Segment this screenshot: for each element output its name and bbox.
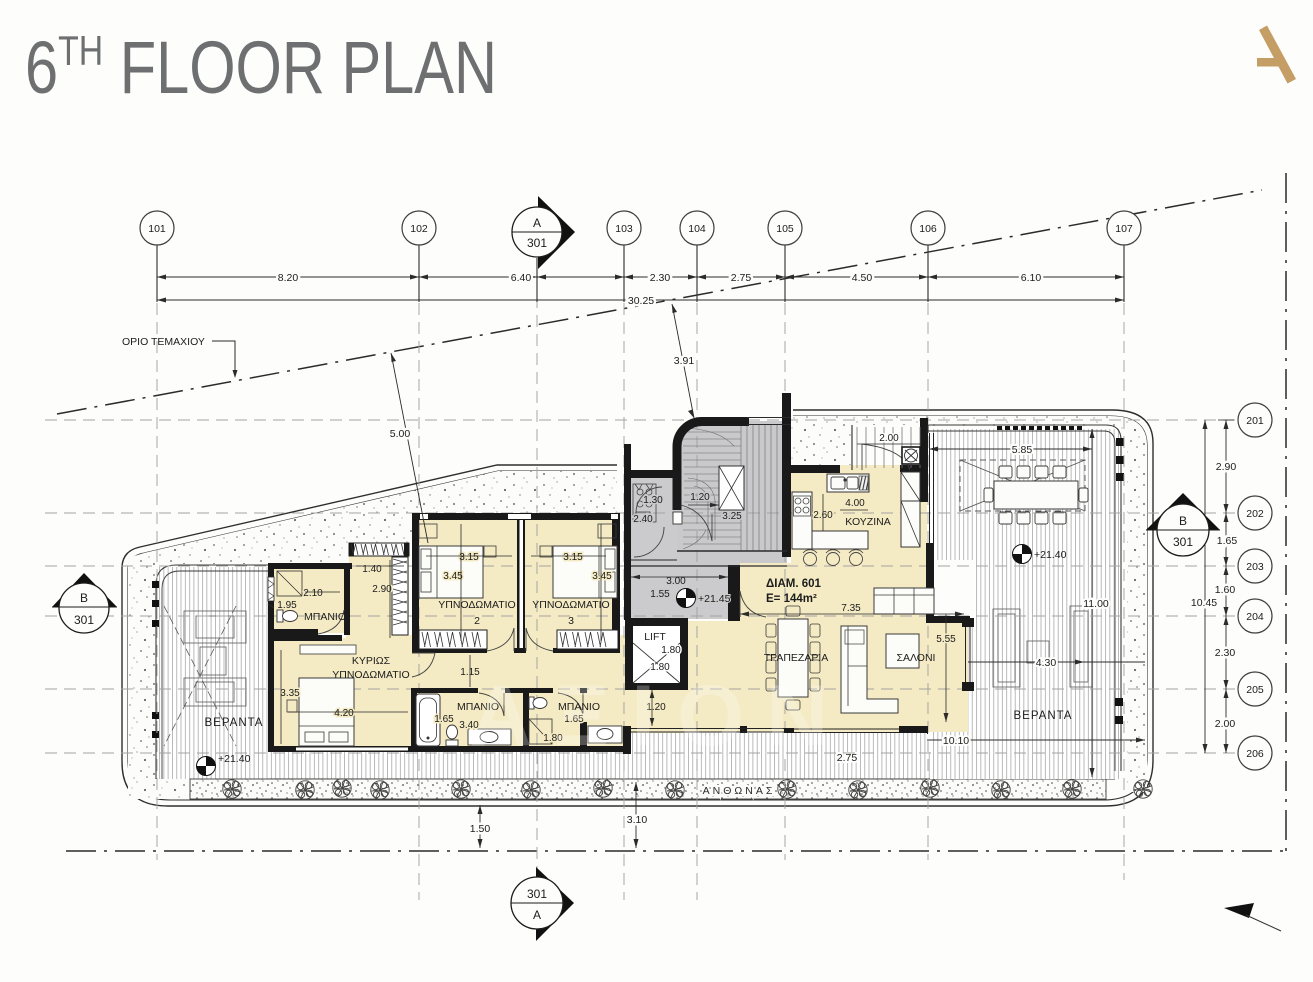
svg-text:1.65: 1.65 bbox=[1217, 535, 1238, 547]
svg-text:1.65: 1.65 bbox=[434, 714, 454, 725]
svg-text:ΚΟΥΖΙΝΑ: ΚΟΥΖΙΝΑ bbox=[845, 516, 890, 528]
svg-text:ΒΕΡΑΝΤΑ: ΒΕΡΑΝΤΑ bbox=[205, 717, 264, 729]
svg-text:10.45: 10.45 bbox=[1191, 597, 1217, 609]
svg-text:ΟΡΙΟ ΤΕΜΑΧΙΟΥ: ΟΡΙΟ ΤΕΜΑΧΙΟΥ bbox=[122, 336, 205, 348]
svg-text:105: 105 bbox=[776, 223, 794, 235]
svg-text:A: A bbox=[533, 908, 541, 922]
svg-text:5.00: 5.00 bbox=[390, 428, 411, 440]
svg-text:106: 106 bbox=[919, 223, 937, 235]
svg-text:2.40: 2.40 bbox=[633, 514, 653, 525]
svg-text:3.15: 3.15 bbox=[563, 552, 583, 563]
svg-text:3.10: 3.10 bbox=[627, 814, 648, 826]
svg-text:3.45: 3.45 bbox=[443, 571, 463, 582]
svg-text:1.95: 1.95 bbox=[277, 600, 297, 611]
svg-text:2.90: 2.90 bbox=[372, 584, 392, 595]
svg-text:ΔΙΑΜ. 601: ΔΙΑΜ. 601 bbox=[766, 578, 822, 590]
svg-text:101: 101 bbox=[148, 223, 166, 235]
svg-text:ΤΡΑΠΕΖΑΡΙΑ: ΤΡΑΠΕΖΑΡΙΑ bbox=[764, 652, 829, 664]
svg-text:ΥΠΝΟΔΩΜΑΤΙΟ: ΥΠΝΟΔΩΜΑΤΙΟ bbox=[438, 599, 515, 611]
svg-text:301: 301 bbox=[1173, 535, 1193, 549]
svg-text:3: 3 bbox=[568, 615, 574, 627]
svg-text:1.50: 1.50 bbox=[470, 823, 491, 835]
svg-text:3.15: 3.15 bbox=[459, 552, 479, 563]
svg-text:10.10: 10.10 bbox=[943, 735, 969, 747]
svg-text:1.60: 1.60 bbox=[1215, 584, 1236, 596]
svg-text:A: A bbox=[533, 216, 541, 230]
svg-text:+21.45: +21.45 bbox=[698, 593, 731, 605]
svg-text:1.80: 1.80 bbox=[661, 645, 681, 656]
svg-text:6.10: 6.10 bbox=[1021, 272, 1042, 284]
svg-text:1.55: 1.55 bbox=[650, 589, 670, 600]
svg-text:3.35: 3.35 bbox=[280, 688, 300, 699]
svg-text:301: 301 bbox=[74, 613, 94, 627]
svg-text:2.00: 2.00 bbox=[1215, 718, 1236, 730]
svg-text:ΑΞΙΟΝ: ΑΞΙΟΝ bbox=[470, 668, 850, 764]
svg-text:2: 2 bbox=[474, 615, 480, 627]
svg-text:103: 103 bbox=[615, 223, 633, 235]
svg-text:203: 203 bbox=[1246, 561, 1264, 573]
svg-text:1.30: 1.30 bbox=[643, 495, 663, 506]
svg-text:5.55: 5.55 bbox=[936, 634, 956, 645]
svg-text:7.35: 7.35 bbox=[841, 603, 861, 614]
svg-text:3.45: 3.45 bbox=[592, 571, 612, 582]
svg-text:4.30: 4.30 bbox=[1036, 657, 1057, 669]
svg-text:5.85: 5.85 bbox=[1012, 444, 1033, 456]
svg-text:ΚΥΡΙΩΣ: ΚΥΡΙΩΣ bbox=[352, 655, 391, 667]
svg-text:2.90: 2.90 bbox=[1216, 461, 1237, 473]
svg-text:2.30: 2.30 bbox=[650, 272, 671, 284]
svg-text:202: 202 bbox=[1246, 508, 1264, 520]
svg-text:3.25: 3.25 bbox=[722, 511, 742, 522]
svg-text:204: 204 bbox=[1246, 611, 1264, 623]
svg-text:+21.40: +21.40 bbox=[1034, 549, 1067, 561]
svg-text:ΜΠΑΝΙΟ: ΜΠΑΝΙΟ bbox=[304, 611, 346, 623]
svg-text:206: 206 bbox=[1246, 748, 1264, 760]
svg-text:2.30: 2.30 bbox=[1215, 647, 1236, 659]
svg-text:B: B bbox=[1179, 514, 1187, 528]
svg-text:301: 301 bbox=[527, 236, 547, 250]
svg-text:205: 205 bbox=[1246, 684, 1264, 696]
svg-text:2.75: 2.75 bbox=[731, 272, 752, 284]
svg-text:3.00: 3.00 bbox=[666, 576, 686, 587]
svg-text:301: 301 bbox=[527, 887, 547, 901]
svg-text:104: 104 bbox=[688, 223, 706, 235]
svg-text:ΥΠΝΟΔΩΜΑΤΙΟ: ΥΠΝΟΔΩΜΑΤΙΟ bbox=[532, 599, 609, 611]
svg-text:4.50: 4.50 bbox=[852, 272, 873, 284]
svg-text:11.00: 11.00 bbox=[1083, 598, 1109, 610]
svg-text:+21.40: +21.40 bbox=[218, 753, 251, 765]
svg-text:1.20: 1.20 bbox=[690, 492, 710, 503]
svg-text:ΥΠΝΟΔΩΜΑΤΙΟ: ΥΠΝΟΔΩΜΑΤΙΟ bbox=[332, 669, 409, 681]
svg-text:E= 144m²: E= 144m² bbox=[766, 593, 817, 605]
svg-text:107: 107 bbox=[1115, 223, 1133, 235]
svg-text:102: 102 bbox=[410, 223, 428, 235]
svg-text:30.25: 30.25 bbox=[628, 295, 654, 307]
svg-text:2.10: 2.10 bbox=[303, 588, 323, 599]
svg-text:ΑΝΘΩΝΑΣ: ΑΝΘΩΝΑΣ bbox=[703, 785, 776, 797]
svg-text:3.91: 3.91 bbox=[674, 355, 695, 367]
svg-text:4.00: 4.00 bbox=[845, 498, 865, 509]
svg-text:LIFT: LIFT bbox=[644, 631, 666, 643]
svg-text:8.20: 8.20 bbox=[278, 272, 299, 284]
svg-text:2.00: 2.00 bbox=[879, 433, 899, 444]
svg-text:4.20: 4.20 bbox=[334, 708, 354, 719]
svg-text:6.40: 6.40 bbox=[511, 272, 532, 284]
svg-text:ΣΑΛΟΝΙ: ΣΑΛΟΝΙ bbox=[897, 652, 936, 664]
svg-text:ΒΕΡΑΝΤΑ: ΒΕΡΑΝΤΑ bbox=[1014, 710, 1073, 722]
svg-text:B: B bbox=[80, 591, 88, 605]
svg-text:201: 201 bbox=[1246, 415, 1264, 427]
